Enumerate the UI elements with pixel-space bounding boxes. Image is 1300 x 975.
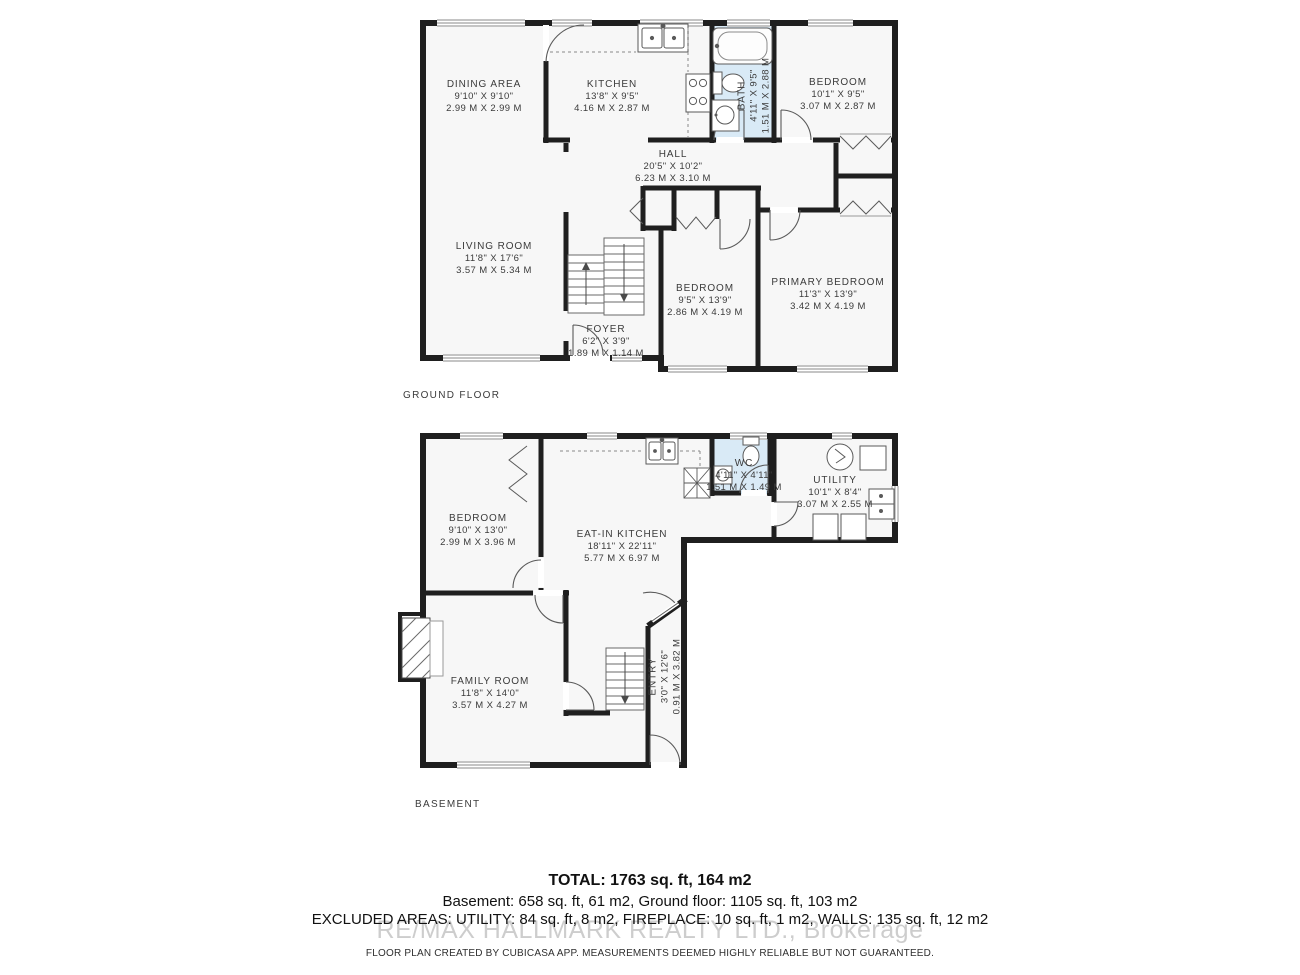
gf-bath-sink-icon — [712, 100, 739, 131]
basement-plan — [390, 420, 910, 785]
bm-staircase-icon — [606, 648, 644, 710]
basement-label: BASEMENT — [415, 799, 480, 810]
bm-fireplace-icon — [402, 618, 443, 678]
bm-corner-sink-icon — [714, 466, 732, 484]
disclaimer-line: FLOOR PLAN CREATED BY CUBICASA APP. MEAS… — [0, 948, 1300, 959]
ground-floor-label: GROUND FLOOR — [403, 390, 500, 401]
bm-toilet-icon — [743, 437, 759, 466]
gf-toilet-icon — [713, 72, 744, 94]
total-area-line: TOTAL: 1763 sq. ft, 164 m2 — [0, 872, 1300, 890]
bm-stairs-up-icon — [684, 468, 710, 498]
bm-water-heater-icon — [827, 444, 853, 470]
floor-plan-page: DINING AREA 9'10" X 9'10" 2.99 M X 2.99 … — [0, 0, 1300, 975]
excluded-areas-line: EXCLUDED AREAS: UTILITY: 84 sq. ft, 8 m2… — [0, 911, 1300, 928]
bm-furnace-icon — [860, 446, 886, 470]
bm-dryer-icon — [841, 514, 866, 540]
bm-laundry-sink-icon — [869, 489, 894, 519]
bm-kitchen-sink-icon — [646, 438, 678, 464]
bm-washer-icon — [813, 514, 838, 540]
ground-floor-plan — [395, 5, 915, 405]
gf-stove-icon — [686, 74, 710, 112]
gf-bathtub-icon — [713, 28, 772, 64]
bm-floor-fill — [423, 436, 895, 765]
floor-areas-line: Basement: 658 sq. ft, 61 m2, Ground floo… — [0, 893, 1300, 910]
gf-kitchen-sink-icon — [638, 24, 688, 52]
